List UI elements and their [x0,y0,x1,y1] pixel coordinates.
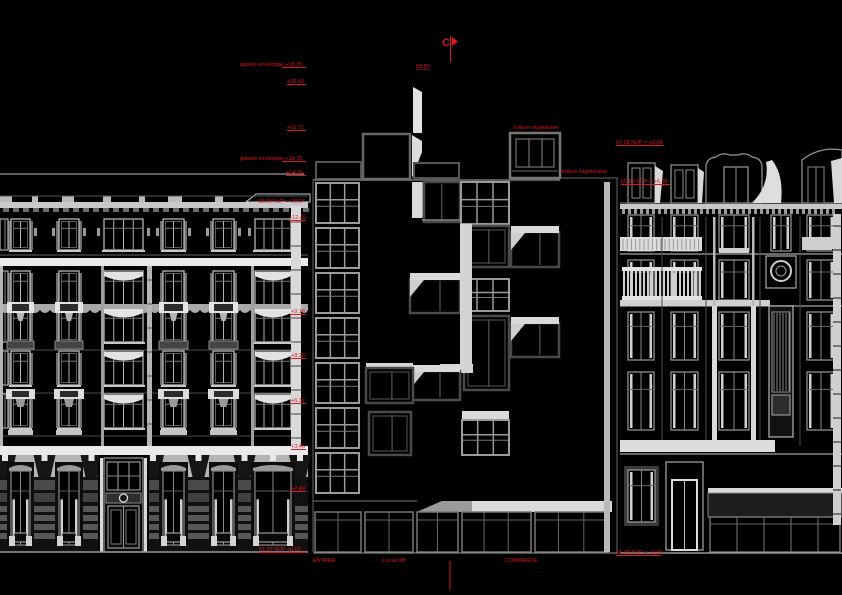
svg-text:ENTREE: ENTREE [313,558,336,564]
svg-text:C: C [442,37,450,49]
svg-text:toiture végétalisée: toiture végétalisée [514,125,559,131]
svg-text:toiture végétalisée: toiture végétalisée [562,169,607,175]
svg-text:68.39 NVP = 28.07: 68.39 NVP = 28.07 [258,199,305,205]
svg-text:Local UB: Local UB [383,558,406,564]
svg-text:COMMERCE: COMMERCE [505,558,538,564]
svg-text:59.85: 59.85 [416,64,430,70]
